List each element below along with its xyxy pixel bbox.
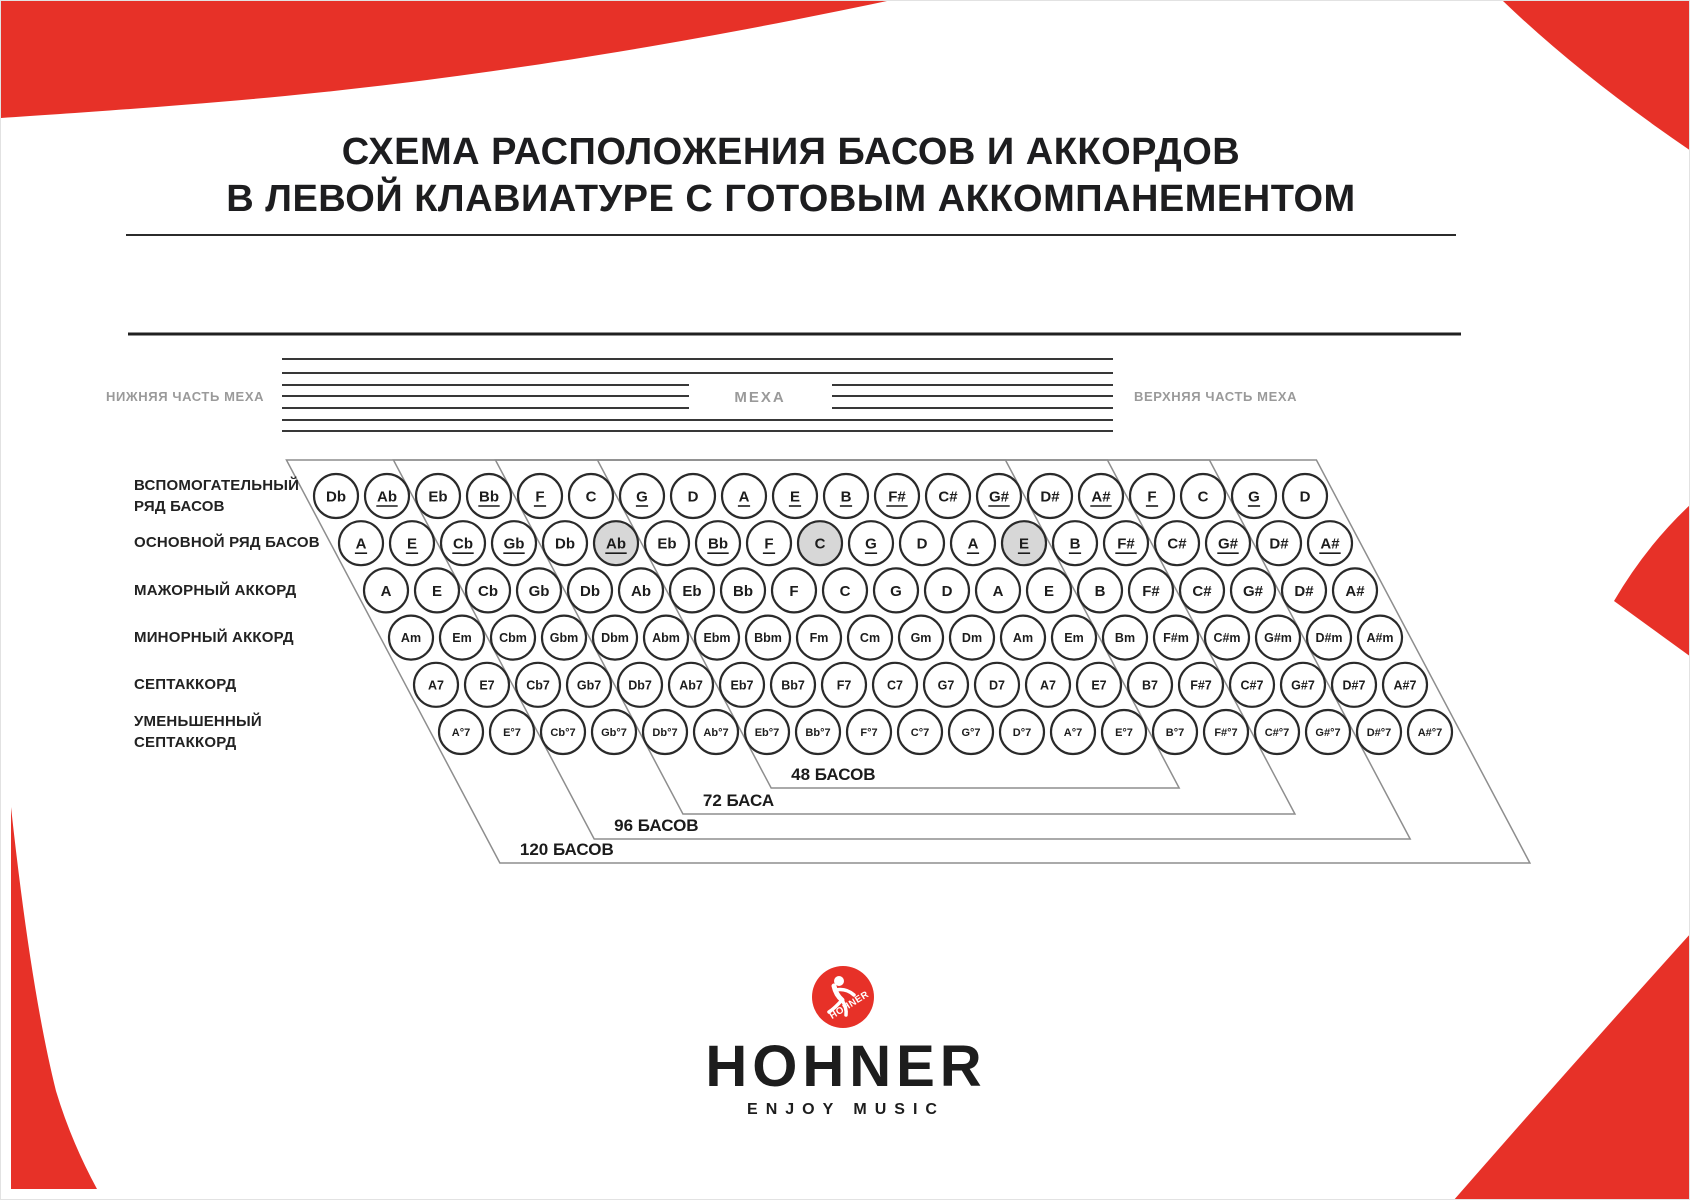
bass-button-label: B	[841, 488, 852, 505]
bass-button-label: D#7	[1343, 678, 1366, 692]
bass-button-label: F°7	[860, 727, 877, 739]
bass-button-label: F	[1147, 488, 1156, 505]
bass-button-label: E	[432, 583, 442, 600]
bass-button-label: C#	[1192, 583, 1212, 600]
bass-button-label: A7	[428, 678, 444, 692]
bellows-center-label: МЕХА	[734, 389, 785, 406]
bass-button-label: F#7	[1190, 678, 1212, 692]
bass-button-label: A#°7	[1418, 727, 1443, 739]
bass-button-label: C#	[1167, 536, 1187, 553]
bass-button-label: Db	[326, 488, 346, 505]
brand-wordmark: HOHNER	[1, 1033, 1690, 1100]
bass-button-label: E	[1019, 536, 1029, 553]
bass-button-label: A#	[1320, 536, 1340, 553]
bass-button-label: A	[968, 536, 979, 553]
bass-button-label: D°7	[1013, 727, 1031, 739]
bass-button-label: C7	[887, 678, 903, 692]
bass-button-label: A#7	[1394, 678, 1417, 692]
section-label: 48 БАСОВ	[791, 765, 875, 784]
bass-button-label: D	[917, 536, 928, 553]
bass-button-label: C#m	[1213, 631, 1240, 645]
bass-button-label: A	[739, 488, 750, 505]
hohner-logo-badge: HOHNER	[812, 966, 874, 1028]
bass-button-label: C	[840, 583, 851, 600]
poster-page: СХЕМА РАСПОЛОЖЕНИЯ БАСОВ И АККОРДОВ В ЛЕ…	[0, 0, 1690, 1200]
bass-button-label: Fm	[810, 631, 829, 645]
row-label-aux-bass: ВСПОМОГАТЕЛЬНЫЙ РЯД БАСОВ	[134, 475, 324, 517]
bass-button-label: Gb	[504, 536, 525, 553]
bass-button-label: A#	[1345, 583, 1365, 600]
bass-button-label: Cb	[478, 583, 498, 600]
bass-button-label: Db	[555, 536, 575, 553]
bass-button-label: A	[356, 536, 367, 553]
section-outline-120-БАСОВ	[286, 460, 1529, 863]
bass-button-label: C	[815, 536, 826, 553]
bass-button-label: G#	[989, 488, 1010, 505]
bass-button-label: G	[890, 583, 902, 600]
bass-button-label: Dbm	[601, 631, 629, 645]
bass-button-label: Ab	[377, 488, 397, 505]
bass-button-label: A°7	[452, 727, 470, 739]
bass-button-label: F#	[888, 488, 906, 505]
bass-button-label: D	[1300, 488, 1311, 505]
bass-button-label: D	[688, 488, 699, 505]
bass-button-label: C#°7	[1265, 727, 1290, 739]
bass-button-label: D7	[989, 678, 1005, 692]
bass-button-label: A°7	[1064, 727, 1082, 739]
row-label-main-bass: ОСНОВНОЙ РЯД БАСОВ	[134, 532, 324, 553]
bass-button-label: Eb°7	[755, 727, 780, 739]
section-label: 72 БАСА	[703, 791, 774, 810]
bass-button-label: G#m	[1264, 631, 1292, 645]
brand-tagline: ENJOY MUSIC	[1, 1101, 1690, 1119]
bass-button-label: Eb7	[731, 678, 754, 692]
bass-button-label: A#m	[1366, 631, 1393, 645]
bass-button-label: Bbm	[754, 631, 782, 645]
bass-button-label: Am	[1013, 631, 1033, 645]
bass-button-label: B	[1095, 583, 1106, 600]
bass-button-label: F#°7	[1214, 727, 1237, 739]
bass-button-label: F	[764, 536, 773, 553]
bass-button-label: F7	[837, 678, 852, 692]
bass-button-label: Abm	[652, 631, 680, 645]
bellows-upper-part-label: ВЕРХНЯЯ ЧАСТЬ МЕХА	[1134, 389, 1297, 404]
bass-button-label: Bm	[1115, 631, 1135, 645]
bass-button-label: Ebm	[703, 631, 730, 645]
bass-button-label: Gbm	[550, 631, 578, 645]
bass-button-label: G	[1248, 488, 1260, 505]
bass-button-label: Bb°7	[805, 727, 830, 739]
bass-button-label: Eb	[428, 488, 447, 505]
bass-button-label: B	[1070, 536, 1081, 553]
row-label-diminished-seventh: УМЕНЬШЕННЫЙ СЕПТАККОРД	[134, 711, 324, 753]
bass-button-label: Am	[401, 631, 421, 645]
bass-button-label: Bb	[708, 536, 728, 553]
bass-button-label: G#7	[1291, 678, 1315, 692]
bass-button-label: Eb	[657, 536, 676, 553]
bass-button-label: Bb	[733, 583, 753, 600]
bass-button-label: D#	[1269, 536, 1289, 553]
bass-button-label: C	[586, 488, 597, 505]
bass-button-label: Em	[452, 631, 471, 645]
bass-button-label: G	[636, 488, 648, 505]
bass-button-label: G°7	[961, 727, 980, 739]
bass-button-label: G#	[1243, 583, 1264, 600]
bass-button-label: A7	[1040, 678, 1056, 692]
bass-button-label: Db°7	[652, 727, 677, 739]
bass-button-label: Cb7	[526, 678, 550, 692]
bass-button-label: Db7	[628, 678, 652, 692]
bass-button-label: Gb7	[577, 678, 601, 692]
bass-button-label: Cb°7	[550, 727, 575, 739]
bass-button-label: A	[993, 583, 1004, 600]
section-label: 120 БАСОВ	[520, 840, 614, 859]
bass-button-label: E	[790, 488, 800, 505]
bass-button-label: E7	[479, 678, 494, 692]
bass-button-label: D#°7	[1367, 727, 1392, 739]
bass-button-label: G7	[938, 678, 955, 692]
bass-button-label: Bb7	[781, 678, 805, 692]
bass-button-label: Gb°7	[601, 727, 627, 739]
bass-button-label: Dm	[962, 631, 982, 645]
bass-button-label: D#	[1040, 488, 1060, 505]
bass-button-label: D	[942, 583, 953, 600]
bass-button-label: Eb	[682, 583, 701, 600]
bass-button-label: E	[1044, 583, 1054, 600]
bass-button-label: Cb	[453, 536, 473, 553]
bass-button-label: G	[865, 536, 877, 553]
bass-button-label: Cm	[860, 631, 880, 645]
bass-button-label: Bb	[479, 488, 499, 505]
bellows-lower-part-label: НИЖНЯЯ ЧАСТЬ МЕХА	[106, 389, 264, 404]
bass-button-label: Gm	[911, 631, 932, 645]
bass-button-label: C#7	[1241, 678, 1264, 692]
section-label: 96 БАСОВ	[614, 816, 698, 835]
bass-button-label: F	[789, 583, 798, 600]
bass-button-label: D#	[1294, 583, 1314, 600]
bass-button-label: Em	[1064, 631, 1083, 645]
bass-button-label: E7	[1091, 678, 1106, 692]
bass-button-label: Ab	[606, 536, 626, 553]
bass-button-label: E	[407, 536, 417, 553]
bass-button-label: F#	[1142, 583, 1160, 600]
bass-button-label: D#m	[1315, 631, 1342, 645]
bass-button-label: F	[535, 488, 544, 505]
row-label-minor-chord: МИНОРНЫЙ АККОРД	[134, 627, 324, 648]
bass-button-label: F#m	[1163, 631, 1189, 645]
bass-button-label: B7	[1142, 678, 1158, 692]
bass-button-label: A	[381, 583, 392, 600]
bass-button-label: F#	[1117, 536, 1135, 553]
bass-button-label: E°7	[1115, 727, 1133, 739]
bass-button-label: C#	[938, 488, 958, 505]
bass-button-label: Db	[580, 583, 600, 600]
row-label-major-chord: МАЖОРНЫЙ АККОРД	[134, 580, 324, 601]
bass-button-label: B°7	[1166, 727, 1184, 739]
bass-button-label: G#	[1218, 536, 1239, 553]
bass-button-label: Ab°7	[703, 727, 728, 739]
bass-button-label: A#	[1091, 488, 1111, 505]
bass-button-label: C	[1198, 488, 1209, 505]
bass-button-label: C°7	[911, 727, 929, 739]
bass-button-label: Ab	[631, 583, 651, 600]
bass-button-label: Gb	[529, 583, 550, 600]
row-label-seventh-chord: СЕПТАККОРД	[134, 674, 324, 695]
bass-button-label: Cbm	[499, 631, 527, 645]
bass-button-label: Ab7	[679, 678, 703, 692]
bass-button-label: E°7	[503, 727, 521, 739]
bass-button-label: G#°7	[1315, 727, 1340, 739]
